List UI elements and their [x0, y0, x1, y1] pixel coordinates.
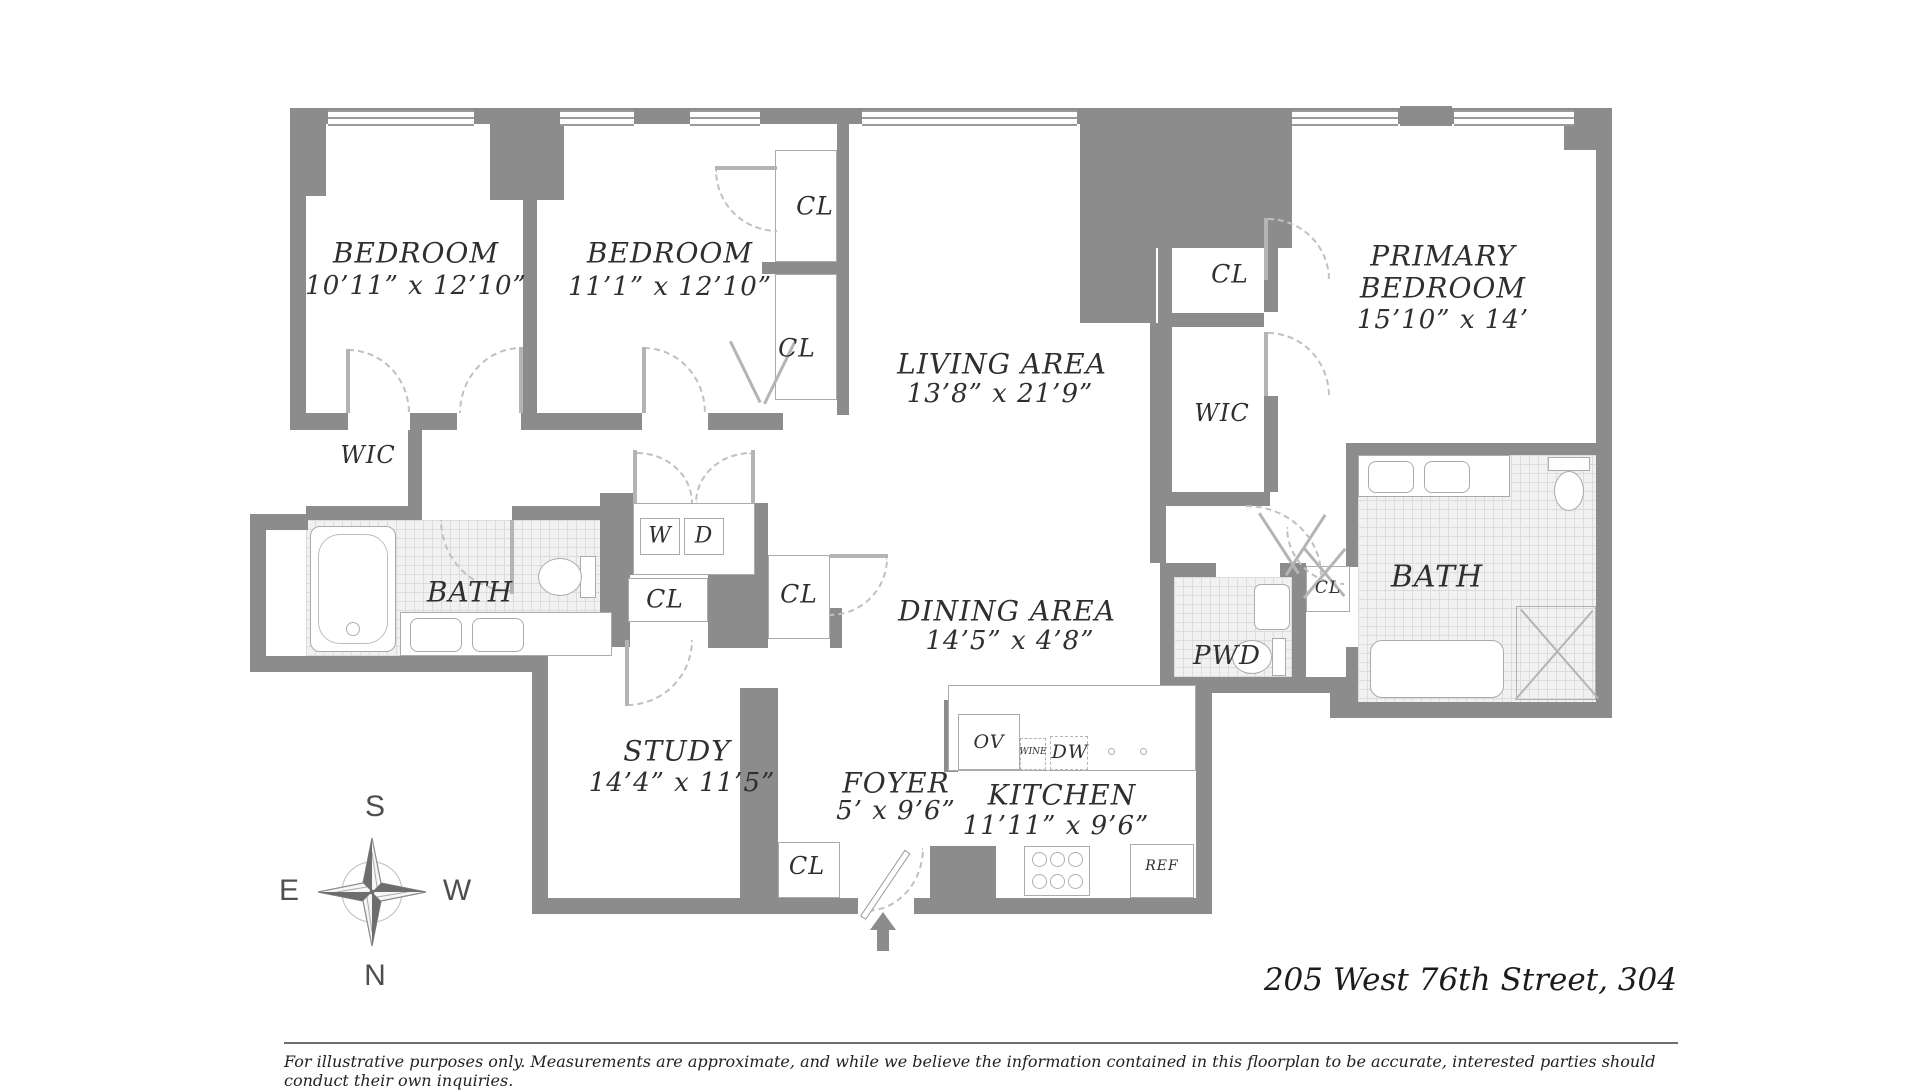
- stove-burner: [1068, 852, 1083, 867]
- compass-east-label: E: [279, 874, 299, 908]
- door-opening: [348, 413, 410, 430]
- wall: [930, 846, 996, 898]
- wall: [306, 506, 422, 520]
- door-arc: [627, 640, 693, 706]
- door-arc: [348, 349, 410, 413]
- primary-bath-sink-1: [1368, 461, 1414, 493]
- door-leaf: [751, 450, 755, 503]
- living-area-name: LIVING AREA: [897, 348, 1107, 381]
- address: 205 West 76th Street, 304: [1264, 962, 1677, 998]
- window: [690, 110, 760, 126]
- bedroom2-name: BEDROOM: [587, 237, 753, 270]
- wall: [1596, 108, 1612, 718]
- primary-bedroom-dims: 15’10” x 14’: [1357, 305, 1529, 335]
- stove-burner: [1068, 874, 1083, 889]
- wall: [762, 262, 837, 274]
- washer-label: W: [648, 524, 672, 549]
- refrigerator-label: REF: [1145, 858, 1178, 874]
- bedroom2-dims: 11’1” x 12’10”: [568, 272, 772, 302]
- closet-mid-label: CL: [646, 585, 684, 614]
- door-arc: [695, 452, 751, 503]
- primary-bath-sink-2: [1424, 461, 1470, 493]
- wall: [1158, 492, 1270, 506]
- wall: [490, 108, 564, 200]
- bath-sink-1: [410, 618, 462, 652]
- door-arc: [459, 347, 521, 413]
- wic-left-label: WIC: [340, 441, 396, 469]
- wall: [755, 503, 768, 575]
- door-leaf: [519, 347, 523, 413]
- door-leaf: [346, 349, 350, 413]
- kitchen-dims: 11’11” x 9’6”: [963, 811, 1150, 841]
- bathtub-faucet: [346, 622, 360, 636]
- foyer-dims: 5’ x 9’6”: [836, 796, 956, 826]
- entry-arrow-icon: [870, 912, 896, 930]
- disclaimer: For illustrative purposes only. Measurem…: [284, 1052, 1678, 1090]
- study-name: STUDY: [623, 735, 730, 768]
- pwd-sink: [1254, 584, 1290, 630]
- living-area-dims: 13’8” x 21’9”: [907, 379, 1094, 409]
- wall: [1158, 313, 1268, 327]
- closet2-label: CL: [778, 334, 816, 363]
- wall: [1160, 563, 1174, 693]
- wall: [532, 656, 548, 914]
- wall: [1330, 677, 1346, 718]
- wall: [1346, 647, 1358, 702]
- primary-bathtub: [1370, 640, 1504, 698]
- toilet-tank: [580, 556, 596, 598]
- door-arc: [637, 452, 693, 503]
- foyer-name: FOYER: [842, 767, 949, 800]
- dining-area-dims: 14’5” x 4’8”: [925, 626, 1094, 656]
- bedroom1-name: BEDROOM: [333, 237, 499, 270]
- study-dims: 14’4” x 11’5”: [589, 768, 776, 798]
- door-leaf: [1264, 332, 1268, 396]
- wall: [1080, 108, 1156, 323]
- compass-rose-icon: [314, 834, 430, 950]
- bath-label: BATH: [427, 576, 513, 609]
- compass-west-label: W: [443, 874, 471, 908]
- wall: [1196, 688, 1212, 914]
- stove-burner: [1050, 874, 1065, 889]
- stove-burner: [1050, 852, 1065, 867]
- compass-north-label: N: [364, 959, 386, 993]
- primary-bedroom-name-line2: BEDROOM: [1360, 272, 1526, 305]
- door-opening: [422, 506, 512, 520]
- wall: [532, 898, 860, 914]
- primary-toilet-bowl: [1554, 471, 1584, 511]
- door-leaf: [633, 450, 637, 503]
- door-arc: [715, 170, 777, 232]
- toilet-bowl: [538, 558, 582, 596]
- stove-burner: [1032, 874, 1047, 889]
- closet-foyer-label: CL: [789, 852, 825, 880]
- primary-toilet-tank: [1548, 457, 1590, 471]
- sink-faucet-dot: [1140, 748, 1147, 755]
- door-arc: [830, 558, 888, 616]
- dryer-label: D: [695, 524, 714, 549]
- window: [560, 110, 634, 126]
- wall: [740, 838, 778, 898]
- wall: [914, 898, 1212, 914]
- door-leaf: [625, 640, 629, 706]
- dishwasher-label: DW: [1052, 741, 1089, 763]
- dining-area-name: DINING AREA: [898, 595, 1116, 628]
- primary-bath-label: BATH: [1391, 560, 1483, 595]
- wall: [837, 124, 849, 415]
- closet-bath-label: CL: [1315, 578, 1341, 598]
- wall: [1400, 106, 1452, 126]
- primary-bedroom-name-line1: PRIMARY: [1370, 240, 1516, 273]
- window: [1292, 110, 1398, 126]
- window: [1454, 110, 1574, 126]
- wall: [290, 108, 306, 430]
- stove-burner: [1032, 852, 1047, 867]
- compass-south-label: S: [365, 790, 385, 824]
- door-arc: [1268, 332, 1330, 396]
- window: [328, 110, 474, 126]
- wall: [512, 506, 612, 520]
- floorplan: BEDROOM 10’11” x 12’10” BEDROOM 11’1” x …: [0, 0, 1920, 1080]
- window: [862, 110, 1077, 126]
- wall: [1264, 396, 1278, 492]
- door-leaf: [1264, 218, 1268, 280]
- door-arc: [644, 347, 706, 413]
- closet1-label: CL: [796, 192, 834, 221]
- wic-primary-label: WIC: [1194, 399, 1250, 427]
- wall: [408, 428, 422, 518]
- pwd-toilet-tank: [1272, 638, 1286, 676]
- closet-bifold-leaf: [729, 341, 762, 403]
- door-arc: [1268, 218, 1330, 280]
- closet-right-label: CL: [780, 580, 818, 609]
- door-opening: [457, 413, 521, 430]
- footer-divider: [284, 1042, 1678, 1044]
- wall: [1158, 248, 1172, 506]
- entry-arrow-stem: [877, 929, 889, 951]
- door-leaf: [715, 166, 777, 170]
- door-leaf: [642, 347, 646, 413]
- wall: [1346, 443, 1608, 455]
- bedroom1-dims: 10’11” x 12’10”: [305, 271, 527, 301]
- door-opening: [642, 413, 708, 430]
- kitchen-name: KITCHEN: [988, 779, 1136, 812]
- wall: [740, 688, 778, 840]
- oven-label: OV: [974, 731, 1005, 753]
- wine-cooler-label: WINE: [1019, 747, 1046, 757]
- sink-faucet-dot: [1108, 748, 1115, 755]
- wall: [1292, 563, 1306, 693]
- closet-primary-label: CL: [1211, 260, 1249, 289]
- powder-room-label: PWD: [1193, 641, 1261, 671]
- wall: [250, 514, 266, 672]
- wall: [1346, 455, 1358, 567]
- wall: [1346, 702, 1608, 718]
- wall: [708, 575, 768, 648]
- door-leaf: [830, 554, 888, 558]
- bath-sink-2: [472, 618, 524, 652]
- wall: [250, 656, 548, 672]
